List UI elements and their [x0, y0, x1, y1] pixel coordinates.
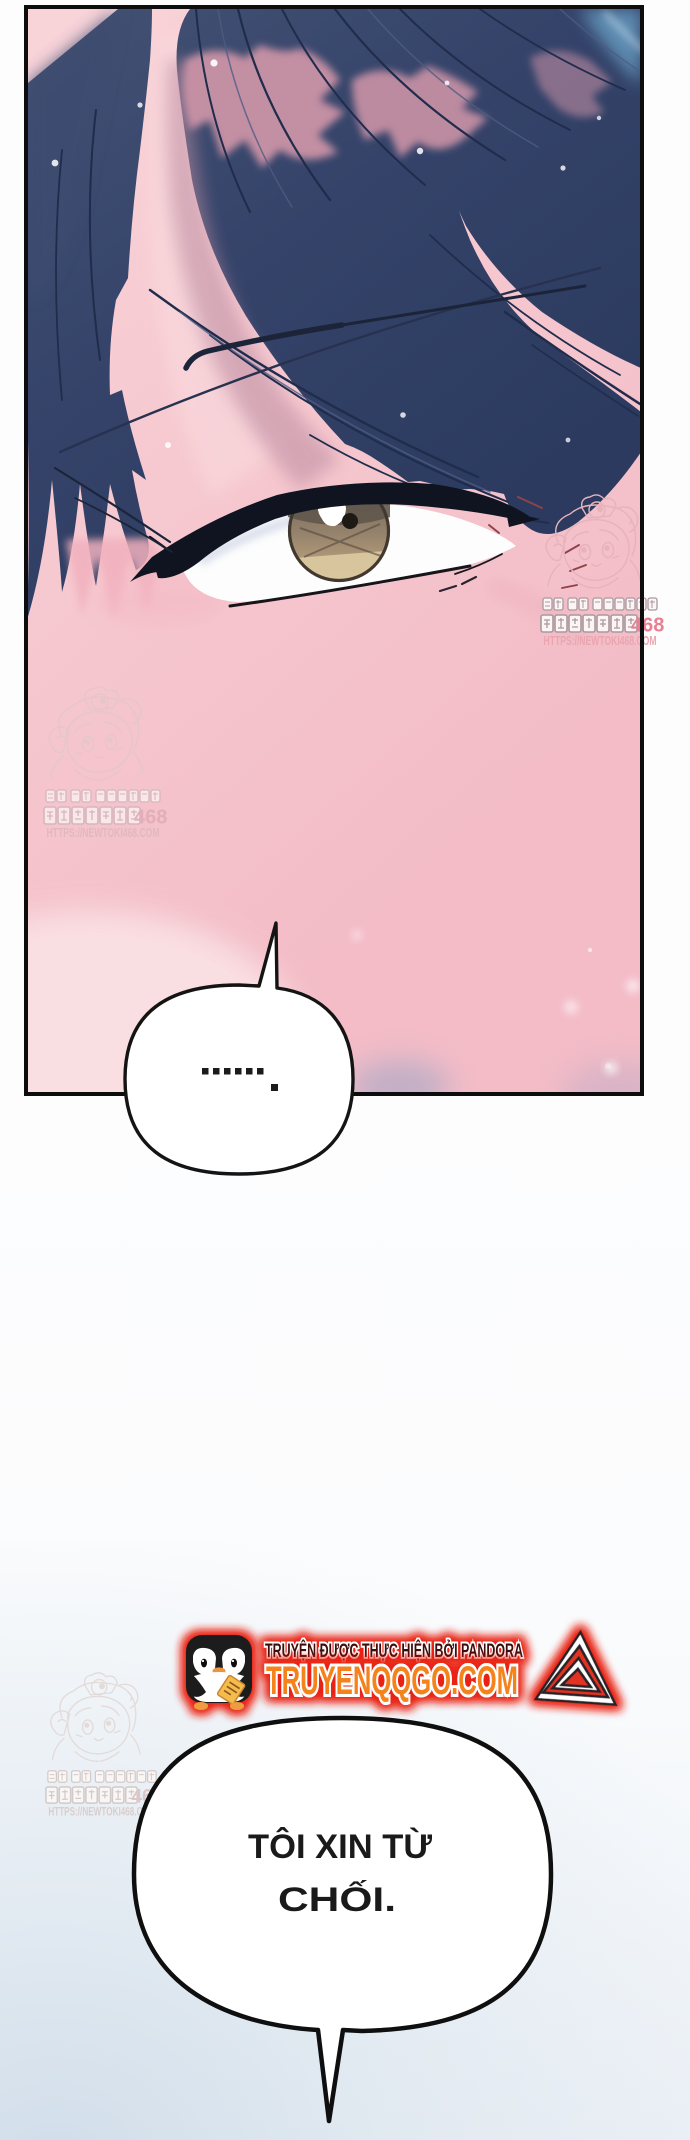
svg-text:TRUYENQQGO.COM: TRUYENQQGO.COM	[266, 1659, 518, 1703]
svg-text:CHỐI.: CHỐI.	[278, 1880, 396, 1919]
svg-text:TÔI XIN TỪ: TÔI XIN TỪ	[248, 1827, 433, 1866]
